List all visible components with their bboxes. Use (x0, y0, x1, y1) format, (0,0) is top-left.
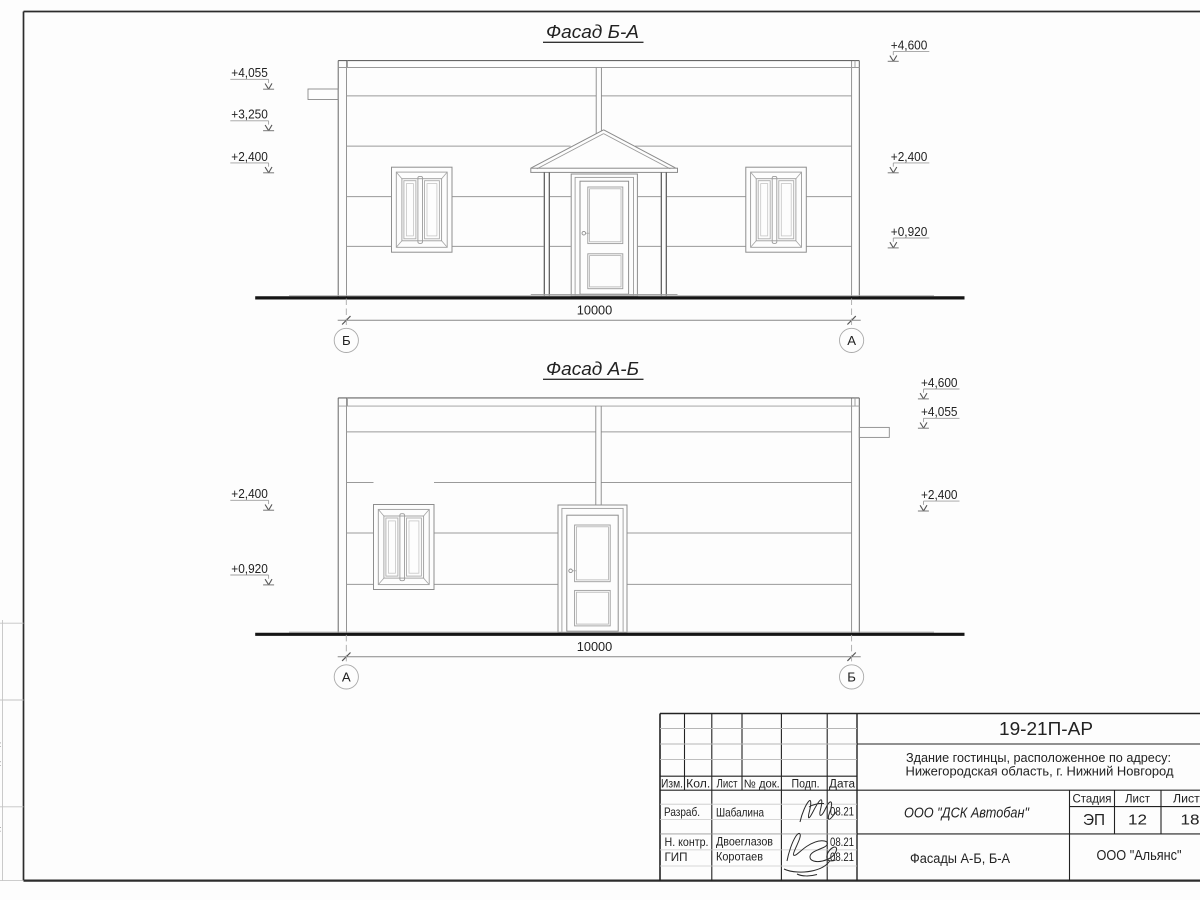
svg-text:Лист: Лист (717, 778, 739, 790)
svg-text:Здание гостинцы, расположенное: Здание гостинцы, расположенное по адресу… (906, 750, 1171, 765)
svg-text:Б: Б (342, 333, 351, 348)
svg-text:+2,400: +2,400 (921, 488, 958, 502)
svg-text:+0,920: +0,920 (891, 225, 928, 239)
svg-text:ООО "Альянс": ООО "Альянс" (1097, 848, 1182, 864)
svg-text:+3,250: +3,250 (231, 108, 268, 122)
svg-text:18: 18 (1181, 813, 1200, 829)
svg-text:Разраб.: Разраб. (664, 805, 700, 819)
svg-text:08.21: 08.21 (830, 852, 854, 864)
svg-text:10000: 10000 (577, 640, 613, 654)
svg-text:Кол.: Кол. (686, 778, 710, 790)
svg-text:Лист: Лист (1125, 791, 1150, 805)
svg-text:А: А (342, 670, 351, 685)
svg-text:+2,400: +2,400 (231, 487, 268, 501)
svg-text:Фасад Б-А: Фасад Б-А (546, 21, 639, 42)
svg-text:Б: Б (847, 670, 856, 685)
svg-text:Фасад А-Б: Фасад А-Б (546, 358, 639, 379)
svg-text:Дата: Дата (829, 778, 856, 790)
svg-text:08.21: 08.21 (830, 806, 854, 818)
svg-text:+4,600: +4,600 (891, 38, 928, 52)
svg-text:Инв. № подл.: Инв. № подл. (0, 821, 2, 868)
svg-text:Фасады А-Б, Б-А: Фасады А-Б, Б-А (910, 851, 1010, 866)
svg-text:Коротаев: Коротаев (716, 850, 763, 864)
svg-text:Нижегородская область, г. Нижн: Нижегородская область, г. Нижний Новгоро… (906, 764, 1174, 779)
svg-text:Листов: Листов (1173, 791, 1200, 805)
svg-text:12: 12 (1128, 813, 1147, 829)
svg-text:№ док.: № док. (744, 778, 780, 790)
svg-text:Шабалина: Шабалина (716, 806, 764, 820)
svg-text:+2,400: +2,400 (891, 150, 928, 164)
svg-text:Н. контр.: Н. контр. (665, 835, 709, 849)
svg-text:Двоеглазов: Двоеглазов (716, 835, 773, 849)
svg-text:+4,600: +4,600 (921, 376, 958, 390)
svg-text:Изм.: Изм. (661, 778, 683, 790)
svg-text:ЭП: ЭП (1083, 812, 1105, 829)
svg-text:Подп. и дата: Подп. и дата (0, 730, 2, 775)
svg-text:ООО "ДСК Автобан": ООО "ДСК Автобан" (904, 806, 1030, 822)
svg-text:10000: 10000 (577, 304, 613, 318)
svg-text:+2,400: +2,400 (231, 150, 268, 164)
svg-text:Подп.: Подп. (792, 778, 820, 790)
svg-text:19-21П-АР: 19-21П-АР (999, 718, 1093, 739)
svg-text:+0,920: +0,920 (231, 562, 268, 576)
svg-text:+4,055: +4,055 (231, 66, 268, 80)
svg-text:Стадия: Стадия (1073, 791, 1112, 805)
svg-text:+4,055: +4,055 (921, 405, 958, 419)
svg-text:А: А (847, 333, 856, 348)
svg-text:ГИП: ГИП (665, 850, 688, 864)
